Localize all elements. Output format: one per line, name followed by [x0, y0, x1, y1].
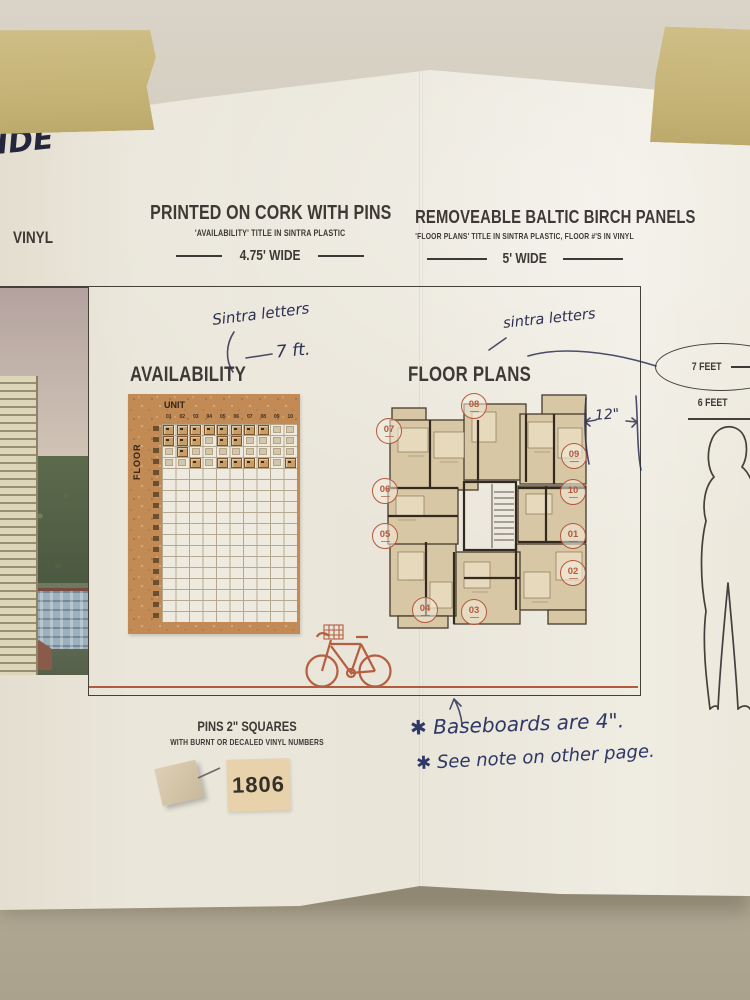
header-text: REMOVEABLE BALTIC BIRCH PANELS — [415, 206, 696, 228]
masking-tape-right — [650, 26, 750, 146]
paper-sheet: VINYL PRINTED ON CORK WITH PINS 'AVAILAB… — [0, 0, 750, 1000]
grid-cell — [257, 545, 271, 556]
grid-cell — [243, 501, 257, 512]
seven-feet-oval: 7 FEET — [655, 343, 750, 391]
faint-unit-mark — [192, 448, 200, 455]
faint-unit-mark — [165, 448, 173, 455]
grid-cell — [284, 479, 298, 490]
grid-cell — [284, 424, 298, 435]
grid-cell — [162, 457, 176, 468]
handwriting-baseboard-note: ✱ Baseboards are 4". — [410, 708, 625, 739]
seven-feet-leader-line — [731, 366, 750, 368]
grid-cell — [216, 534, 230, 545]
availability-pin — [177, 447, 188, 457]
grid-cell — [189, 435, 203, 446]
grid-cell — [284, 446, 298, 457]
unit-badge: 10 — [560, 479, 586, 505]
grid-cell — [270, 435, 284, 446]
grid-cell — [230, 611, 244, 622]
unit-number-header: 04 — [203, 413, 217, 422]
grid-cell — [216, 468, 230, 479]
grid-cell — [176, 490, 190, 501]
grid-cell — [216, 501, 230, 512]
grid-cell — [230, 424, 244, 435]
unit-number-header: 08 — [257, 413, 271, 422]
grid-cell — [270, 534, 284, 545]
unit-number-header: 09 — [270, 413, 284, 422]
grid-cell — [203, 435, 217, 446]
unit-number-header: 07 — [243, 413, 257, 422]
highrise-tower — [0, 376, 38, 675]
grid-cell — [203, 512, 217, 523]
grid-cell — [257, 556, 271, 567]
masking-tape-left — [0, 26, 159, 134]
grid-cell — [284, 435, 298, 446]
grid-cell — [230, 468, 244, 479]
grid-cell — [162, 468, 176, 479]
grid-cell — [230, 556, 244, 567]
pins-legend-line2: WITH BURNT OR DECALED VINYL NUMBERS — [170, 737, 324, 747]
unit-number-header-row: 01020304050607080910 — [162, 413, 297, 422]
pins-legend: PINS 2" SQUARES WITH BURNT OR DECALED VI… — [140, 718, 354, 747]
grid-cell — [257, 589, 271, 600]
floor-number-mark — [153, 481, 159, 486]
grid-cell — [243, 512, 257, 523]
grid-cell — [162, 512, 176, 523]
grid-cell — [270, 578, 284, 589]
grid-cell — [257, 611, 271, 622]
person-silhouette — [684, 415, 750, 711]
availability-pin — [190, 436, 201, 446]
grid-cell — [284, 545, 298, 556]
floor-number-mark — [153, 536, 159, 541]
grid-cell — [257, 479, 271, 490]
grid-cell — [243, 545, 257, 556]
grid-cell — [230, 578, 244, 589]
grid-cell — [243, 490, 257, 501]
grid-cell — [270, 611, 284, 622]
width-dimension: 5' WIDE — [380, 250, 670, 267]
blue-apartment-building — [30, 588, 88, 649]
grid-cell — [243, 589, 257, 600]
availability-pin — [244, 458, 255, 468]
availability-pin — [190, 458, 201, 468]
grid-cell — [203, 457, 217, 468]
grid-cell — [162, 490, 176, 501]
grid-cell — [216, 589, 230, 600]
faint-unit-mark — [259, 437, 267, 444]
grid-cell — [176, 435, 190, 446]
floor-number-mark — [153, 569, 159, 574]
grid-cell — [162, 446, 176, 457]
grid-cell — [162, 556, 176, 567]
grid-cell — [162, 435, 176, 446]
grid-cell — [176, 534, 190, 545]
grid-cell — [243, 567, 257, 578]
faint-unit-mark — [273, 448, 281, 455]
grid-cell — [270, 556, 284, 567]
grid-cell — [203, 611, 217, 622]
grid-cell — [270, 512, 284, 523]
grid-cell — [270, 446, 284, 457]
floor-number-mark — [153, 514, 159, 519]
grid-cell — [257, 578, 271, 589]
grid-cell — [162, 567, 176, 578]
grid-cell — [162, 578, 176, 589]
grid-cell — [189, 457, 203, 468]
left-panel-top-rule — [0, 286, 88, 288]
grid-cell — [243, 600, 257, 611]
floorplans-title: FLOOR PLANS — [408, 363, 562, 387]
availability-pin — [258, 458, 269, 468]
floor-number-mark — [153, 448, 159, 453]
faint-unit-mark — [286, 437, 294, 444]
faint-unit-mark — [286, 426, 294, 433]
floor-number-mark — [153, 503, 159, 508]
subheader-text: 'FLOOR PLANS' TITLE IN SINTRA PLASTIC, F… — [416, 231, 634, 241]
faint-unit-mark — [165, 459, 173, 466]
availability-pin — [177, 425, 188, 435]
floor-axis-label: FLOOR — [132, 444, 142, 481]
grid-cell — [216, 490, 230, 501]
faint-unit-mark — [205, 437, 213, 444]
grid-cell — [257, 534, 271, 545]
floor-number-mark — [153, 558, 159, 563]
grid-cell — [162, 611, 176, 622]
unit-number-header: 02 — [176, 413, 190, 422]
grid-cell — [230, 523, 244, 534]
grid-cell — [216, 523, 230, 534]
unit-badge: 08 — [461, 393, 487, 419]
tile-number: 1806 — [232, 771, 286, 798]
six-feet-label: 6 FEET — [694, 397, 731, 409]
grid-cell — [162, 589, 176, 600]
grid-cell — [284, 556, 298, 567]
grid-cell — [257, 468, 271, 479]
floor-number-column — [153, 426, 159, 624]
availability-pin — [285, 458, 296, 468]
grid-cell — [176, 567, 190, 578]
grid-cell — [203, 578, 217, 589]
grid-cell — [230, 479, 244, 490]
grid-cell — [189, 556, 203, 567]
grid-cell — [216, 545, 230, 556]
grid-cell — [257, 424, 271, 435]
floor-number-mark — [153, 459, 159, 464]
availability-pin — [163, 425, 174, 435]
grid-cell — [203, 446, 217, 457]
grid-cell — [284, 501, 298, 512]
floor-number-mark — [153, 580, 159, 585]
subheader-text: 'AVAILABILITY' TITLE IN SINTRA PLASTIC — [195, 228, 346, 238]
grid-cell — [203, 424, 217, 435]
grid-cell — [270, 589, 284, 600]
grid-cell — [189, 567, 203, 578]
grid-cell — [189, 523, 203, 534]
faint-unit-mark — [205, 448, 213, 455]
floor-plan-drawing: 08 07 09 06 10 05 01 02 04 03 — [368, 392, 608, 634]
floor-number-mark — [153, 426, 159, 431]
faint-unit-mark — [219, 448, 227, 455]
grid-cell — [230, 490, 244, 501]
faint-unit-mark — [259, 448, 267, 455]
faint-unit-mark — [273, 437, 281, 444]
grid-cell — [243, 457, 257, 468]
grid-cell — [216, 567, 230, 578]
grid-cell — [216, 512, 230, 523]
availability-pin — [231, 436, 242, 446]
grid-cell — [270, 567, 284, 578]
unit-badge: 09 — [561, 443, 587, 469]
grid-cell — [257, 501, 271, 512]
grid-cell — [176, 556, 190, 567]
floor-number-mark — [153, 470, 159, 475]
grid-cell — [176, 468, 190, 479]
grid-cell — [257, 457, 271, 468]
grid-cell — [216, 479, 230, 490]
grid-cell — [270, 490, 284, 501]
unit-number-header: 05 — [216, 413, 230, 422]
grid-cell — [230, 512, 244, 523]
grid-cell — [270, 468, 284, 479]
grid-cell — [189, 600, 203, 611]
availability-pin — [177, 436, 188, 446]
availability-pin — [231, 425, 242, 435]
grid-cell — [243, 424, 257, 435]
grid-cell — [189, 534, 203, 545]
unit-badge: 05 — [372, 523, 398, 549]
grid-cell — [243, 534, 257, 545]
grid-cell — [216, 600, 230, 611]
handwriting-twelve-inches: 12" — [594, 406, 619, 424]
grid-cell — [243, 556, 257, 567]
grid-cell — [257, 446, 271, 457]
grid-cell — [257, 490, 271, 501]
unit-badge: 03 — [461, 599, 487, 625]
grid-cell — [284, 534, 298, 545]
grid-cell — [176, 545, 190, 556]
faint-unit-mark — [246, 448, 254, 455]
grid-cell — [189, 512, 203, 523]
unit-number-header: 01 — [162, 413, 176, 422]
bicycle-icon — [298, 620, 400, 692]
faint-unit-mark — [205, 459, 213, 466]
grid-cell — [243, 468, 257, 479]
grid-cell — [176, 457, 190, 468]
unit-badge: 01 — [560, 523, 586, 549]
grid-cell — [243, 578, 257, 589]
header-text: PRINTED ON CORK WITH PINS — [150, 202, 391, 225]
unit-number-header: 10 — [284, 413, 298, 422]
floor-number-mark — [153, 492, 159, 497]
grid-cell — [284, 490, 298, 501]
grid-cell — [243, 446, 257, 457]
grid-cell — [284, 611, 298, 622]
faint-unit-mark — [246, 437, 254, 444]
grid-cell — [189, 545, 203, 556]
grid-cell — [162, 545, 176, 556]
availability-section-header: PRINTED ON CORK WITH PINS 'AVAILABILITY'… — [120, 202, 420, 264]
availability-pin — [217, 425, 228, 435]
handwriting-see-note: ✱ See note on other page. — [416, 741, 656, 774]
grid-cell — [203, 600, 217, 611]
grid-cell — [270, 479, 284, 490]
grid-cell — [257, 567, 271, 578]
grid-cell — [257, 435, 271, 446]
grid-cell — [203, 545, 217, 556]
grid-cell — [216, 578, 230, 589]
grid-cell — [243, 611, 257, 622]
building-photo-panel — [0, 288, 88, 675]
grid-cell — [270, 501, 284, 512]
faint-unit-mark — [232, 448, 240, 455]
floor-number-mark — [153, 547, 159, 552]
grid-cell — [230, 589, 244, 600]
grid-cell — [176, 446, 190, 457]
grid-cell — [203, 501, 217, 512]
availability-grid — [162, 424, 297, 622]
unit-badge: 07 — [376, 418, 402, 444]
floor-number-mark — [153, 602, 159, 607]
faint-unit-mark — [178, 459, 186, 466]
grid-cell — [176, 501, 190, 512]
floor-plate-graphic — [368, 392, 608, 634]
grid-cell — [189, 589, 203, 600]
grid-cell — [216, 446, 230, 457]
pin-needle — [196, 762, 226, 788]
grid-cell — [284, 523, 298, 534]
availability-pin — [217, 458, 228, 468]
grid-cell — [243, 479, 257, 490]
grid-cell — [203, 589, 217, 600]
grid-cell — [176, 512, 190, 523]
grid-cell — [203, 523, 217, 534]
grid-cell — [230, 457, 244, 468]
grid-cell — [284, 468, 298, 479]
grid-cell — [189, 479, 203, 490]
cork-availability-board: UNIT FLOOR 01020304050607080910 — [128, 394, 300, 634]
grid-cell — [284, 567, 298, 578]
grid-cell — [284, 457, 298, 468]
availability-title: AVAILABILITY — [130, 363, 275, 387]
grid-cell — [284, 578, 298, 589]
grid-cell — [243, 435, 257, 446]
unit-badge: 06 — [372, 478, 398, 504]
grid-cell — [270, 600, 284, 611]
grid-cell — [230, 501, 244, 512]
grid-cell — [189, 501, 203, 512]
grid-cell — [176, 589, 190, 600]
grid-cell — [189, 446, 203, 457]
grid-cell — [203, 490, 217, 501]
grid-cell — [176, 523, 190, 534]
grid-cell — [162, 479, 176, 490]
availability-pin — [163, 436, 174, 446]
availability-pin — [244, 425, 255, 435]
floor-number-mark — [153, 437, 159, 442]
faint-unit-mark — [273, 426, 281, 433]
grid-cell — [216, 435, 230, 446]
seven-feet-label: 7 FEET — [692, 361, 722, 373]
grid-cell — [216, 457, 230, 468]
grid-cell — [270, 523, 284, 534]
grid-cell — [230, 600, 244, 611]
grid-cell — [162, 523, 176, 534]
grid-cell — [270, 545, 284, 556]
grid-cell — [230, 545, 244, 556]
availability-pin — [231, 458, 242, 468]
unit-number-header: 06 — [230, 413, 244, 422]
availability-pin — [258, 425, 269, 435]
grid-cell — [189, 424, 203, 435]
grid-cell — [189, 611, 203, 622]
grid-cell — [230, 446, 244, 457]
grid-cell — [203, 534, 217, 545]
availability-pin — [204, 425, 215, 435]
grid-cell — [189, 578, 203, 589]
unit-number-tile: 1806 — [226, 758, 290, 812]
unit-axis-label: UNIT — [164, 400, 185, 410]
grid-cell — [230, 567, 244, 578]
grid-cell — [257, 600, 271, 611]
grid-cell — [284, 512, 298, 523]
grid-cell — [189, 490, 203, 501]
unit-badge: 04 — [412, 597, 438, 623]
faint-unit-mark — [273, 459, 281, 466]
photo-of-taped-design-plan: VINYL PRINTED ON CORK WITH PINS 'AVAILAB… — [0, 0, 750, 1000]
unit-number-header: 03 — [189, 413, 203, 422]
grid-cell — [162, 600, 176, 611]
grid-cell — [270, 457, 284, 468]
grid-cell — [230, 534, 244, 545]
floor-number-mark — [153, 525, 159, 530]
grid-cell — [176, 611, 190, 622]
grid-cell — [176, 578, 190, 589]
floorplans-section-header: REMOVEABLE BALTIC BIRCH PANELS 'FLOOR PL… — [380, 206, 670, 267]
grid-cell — [216, 556, 230, 567]
grid-cell — [284, 600, 298, 611]
grid-cell — [176, 424, 190, 435]
grid-cell — [243, 523, 257, 534]
availability-pin — [217, 436, 228, 446]
grid-cell — [162, 501, 176, 512]
grid-cell — [284, 589, 298, 600]
grid-cell — [162, 424, 176, 435]
unit-badge: 02 — [560, 560, 586, 586]
availability-pin — [190, 425, 201, 435]
grid-cell — [216, 424, 230, 435]
width-dimension: 4.75' WIDE — [120, 247, 420, 264]
grid-cell — [230, 435, 244, 446]
grid-cell — [203, 468, 217, 479]
grid-cell — [216, 611, 230, 622]
grid-cell — [162, 534, 176, 545]
grid-cell — [257, 512, 271, 523]
grid-cell — [203, 556, 217, 567]
grid-cell — [189, 468, 203, 479]
vinyl-panel-label: VINYL — [8, 228, 58, 248]
faint-unit-mark — [286, 448, 294, 455]
pins-legend-line1: PINS 2" SQUARES — [197, 718, 296, 734]
grid-cell — [270, 424, 284, 435]
handwriting-seven-feet: 7 ft. — [275, 340, 311, 363]
grid-cell — [203, 479, 217, 490]
grid-cell — [257, 523, 271, 534]
floor-number-mark — [153, 591, 159, 596]
floor-number-mark — [153, 613, 159, 618]
grid-cell — [176, 600, 190, 611]
grid-cell — [176, 479, 190, 490]
